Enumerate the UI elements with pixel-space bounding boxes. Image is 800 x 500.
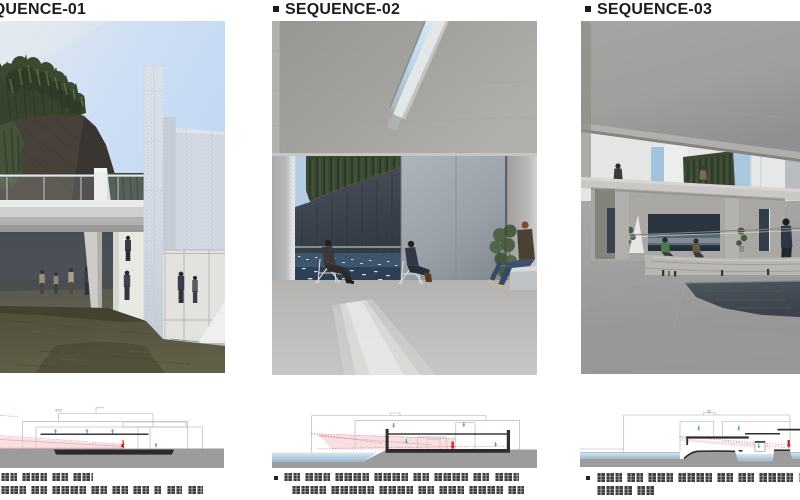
svg-text:472: 472 [55, 408, 62, 413]
